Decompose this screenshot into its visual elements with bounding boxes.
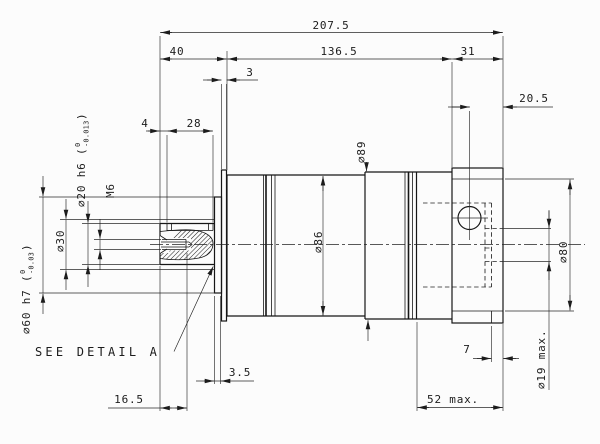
detail-leader xyxy=(174,267,213,352)
motor-flange xyxy=(452,168,503,323)
front-plate xyxy=(222,170,227,321)
dim-body-diameter: ∅86 xyxy=(312,231,325,253)
note-see-detail-a: SEE DETAIL A xyxy=(35,345,160,359)
dim-pilot-diameter: ∅60 h7 ( 0 -0.03 ) xyxy=(19,244,36,334)
ring-section xyxy=(365,172,452,319)
dim-flange-diameter: ∅80 xyxy=(557,241,570,263)
dim-motor-length: 52 max. xyxy=(427,393,479,406)
detail-a-broken-section xyxy=(148,230,245,264)
gearbox-dimension-drawing: 207.5 40 136.5 31 3 20.5 4 28 16.5 3.5 7… xyxy=(0,0,600,444)
access-hole xyxy=(452,111,488,240)
dim-front-length: 40 xyxy=(170,45,185,58)
svg-text:∅30: ∅30 xyxy=(54,230,67,252)
svg-text:0: 0 xyxy=(19,270,27,274)
svg-text:∅20 h6 (: ∅20 h6 ( xyxy=(75,148,88,207)
svg-text:M6: M6 xyxy=(104,183,117,198)
dimension-texts: 207.5 40 136.5 31 3 20.5 4 28 16.5 3.5 7… xyxy=(19,19,570,406)
svg-text:): ) xyxy=(20,244,33,251)
dim-bore-diameter: ∅19 max. xyxy=(535,330,548,389)
dim-shaft-diameter: ∅20 h6 ( 0 -0.013 ) xyxy=(74,113,91,207)
svg-text:∅86: ∅86 xyxy=(312,231,325,253)
dim-plate-thickness: 3 xyxy=(246,66,253,79)
pilot-boss xyxy=(215,197,222,293)
dim-thread-size: M6 xyxy=(104,183,117,198)
svg-text:∅80: ∅80 xyxy=(557,241,570,263)
dim-key-offset: 4 xyxy=(141,117,148,130)
dim-thread-depth: 16.5 xyxy=(114,393,144,406)
dim-mid-length: 136.5 xyxy=(320,45,357,58)
dim-key-length: 28 xyxy=(187,117,202,130)
svg-text:∅89: ∅89 xyxy=(355,141,368,163)
dim-bore-step: 7 xyxy=(463,343,470,356)
svg-text:): ) xyxy=(75,113,88,120)
dim-ring-diameter: ∅89 xyxy=(355,141,368,163)
svg-text:∅19 max.: ∅19 max. xyxy=(535,330,548,389)
technical-drawing-canvas: 207.5 40 136.5 31 3 20.5 4 28 16.5 3.5 7… xyxy=(0,0,600,444)
svg-text:0: 0 xyxy=(74,143,82,147)
dim-boss-length: 3.5 xyxy=(229,366,251,379)
dim-collar-diameter: ∅30 xyxy=(54,230,67,252)
svg-text:-0.03: -0.03 xyxy=(28,252,36,274)
dim-hole-offset: 20.5 xyxy=(519,92,549,105)
dim-flange-width: 31 xyxy=(461,45,476,58)
dim-overall: 207.5 xyxy=(312,19,349,32)
svg-text:-0.013: -0.013 xyxy=(83,121,91,148)
hidden-cavity xyxy=(423,203,503,287)
gear-body xyxy=(227,175,365,316)
svg-text:∅60 h7 (: ∅60 h7 ( xyxy=(20,275,33,334)
